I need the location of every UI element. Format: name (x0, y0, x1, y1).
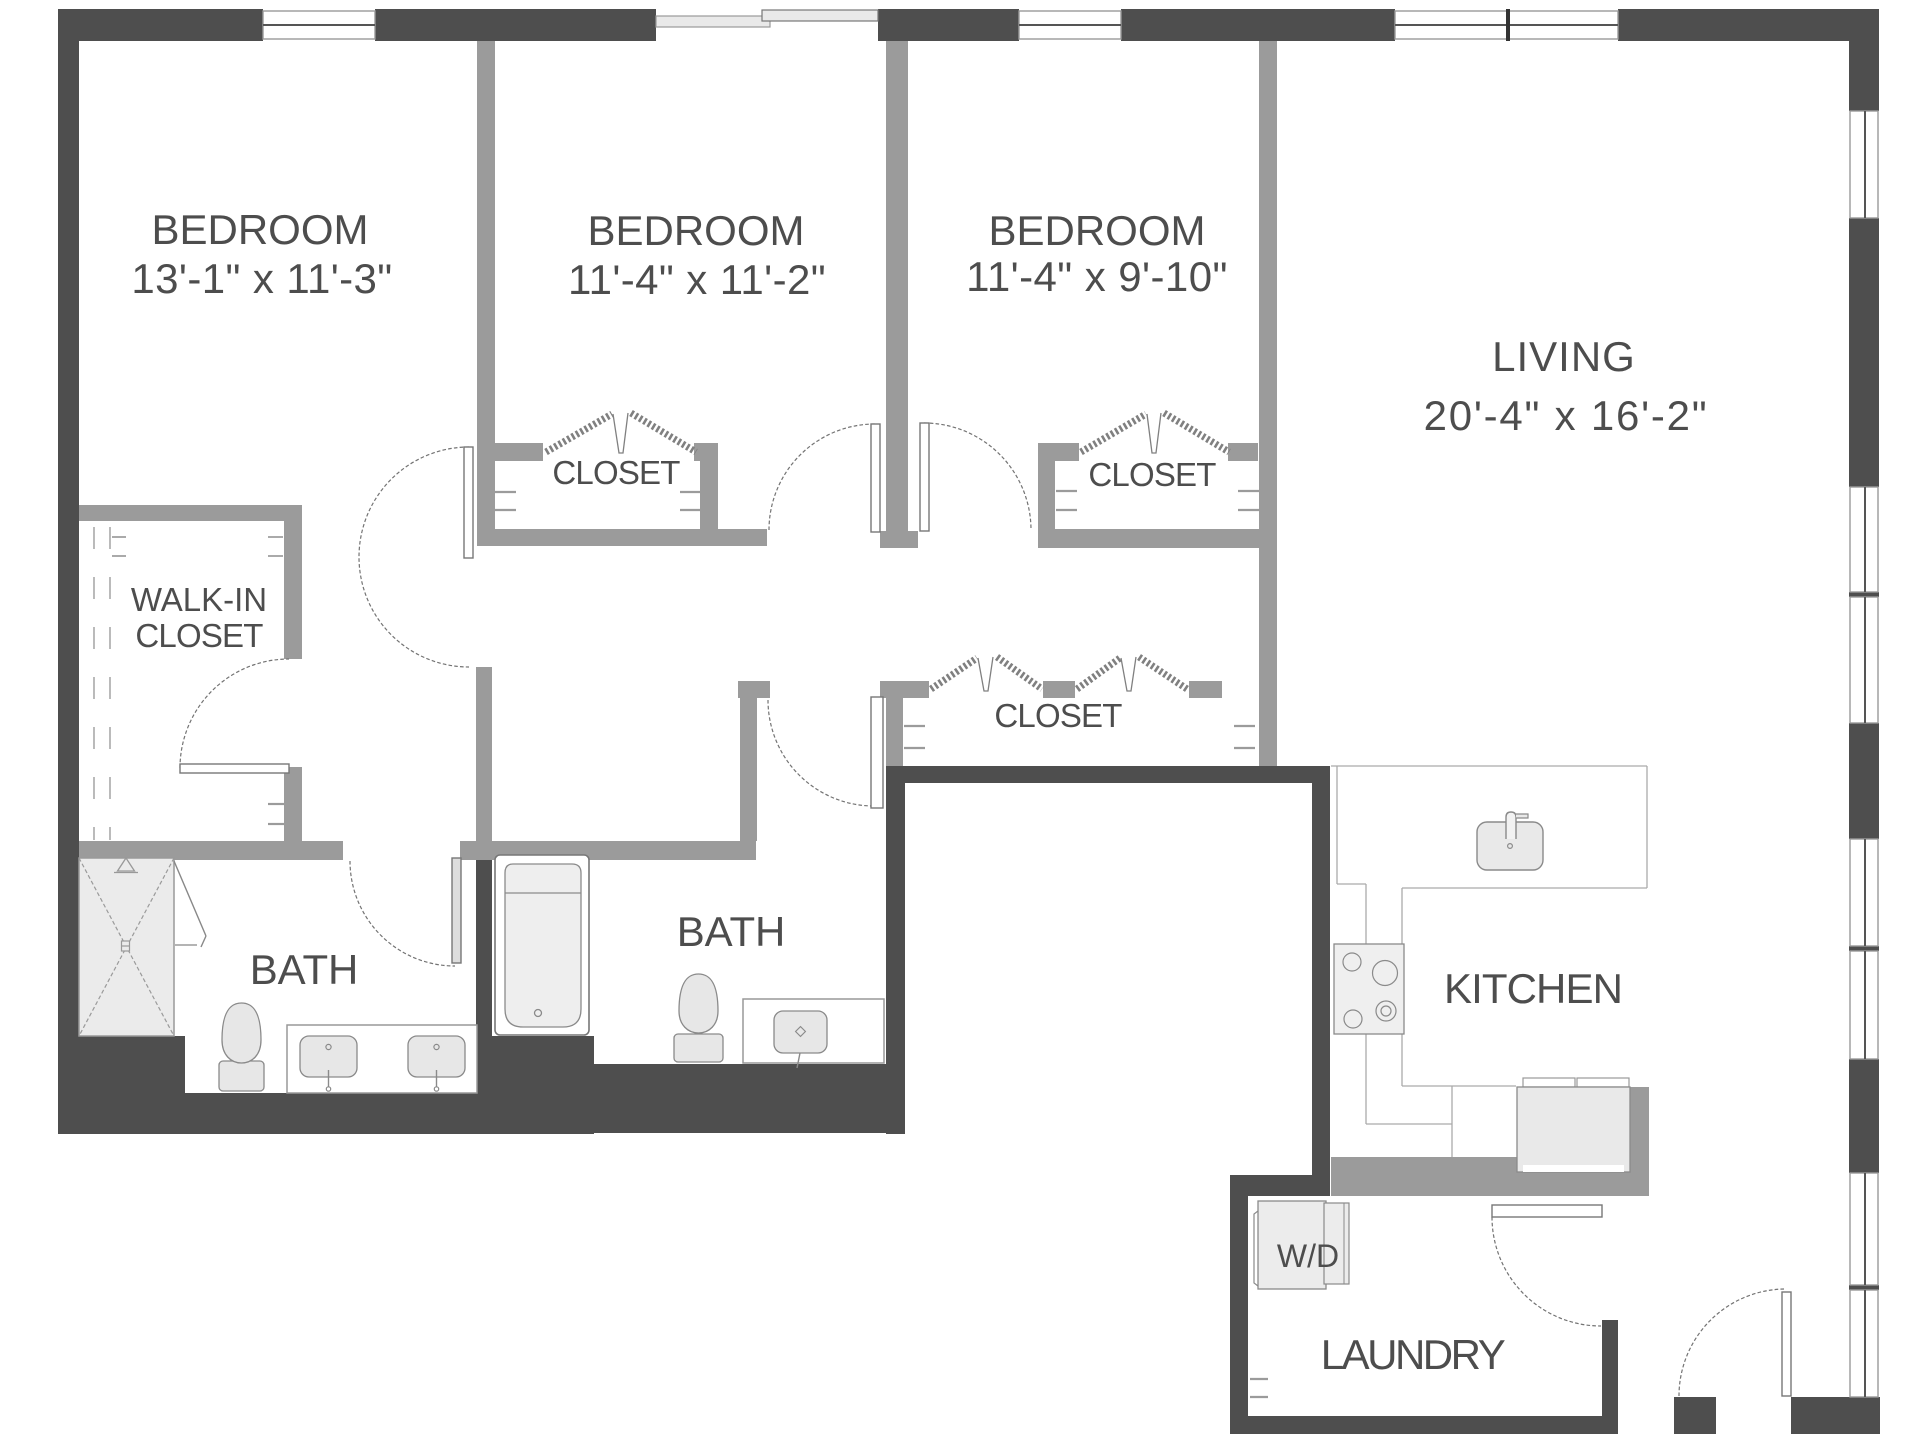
svg-text:13'-1" x 11'-3": 13'-1" x 11'-3" (131, 255, 392, 302)
svg-text:11'-4" x 9'-10": 11'-4" x 9'-10" (966, 253, 1228, 300)
svg-text:CLOSET: CLOSET (135, 617, 263, 654)
svg-text:BEDROOM: BEDROOM (988, 207, 1205, 254)
svg-text:BATH: BATH (677, 908, 786, 955)
svg-text:11'-4" x 11'-2": 11'-4" x 11'-2" (568, 256, 826, 303)
svg-text:KITCHEN: KITCHEN (1444, 965, 1622, 1012)
svg-text:CLOSET: CLOSET (1088, 456, 1216, 493)
svg-text:LAUNDRY: LAUNDRY (1321, 1331, 1506, 1378)
svg-text:BEDROOM: BEDROOM (587, 207, 804, 254)
svg-text:LIVING: LIVING (1492, 333, 1636, 380)
svg-text:BEDROOM: BEDROOM (151, 206, 368, 253)
svg-text:W/D: W/D (1277, 1238, 1339, 1274)
svg-text:CLOSET: CLOSET (552, 454, 680, 491)
svg-text:WALK-IN: WALK-IN (131, 581, 267, 618)
svg-text:20'-4" x 16'-2": 20'-4" x 16'-2" (1424, 392, 1709, 439)
svg-text:CLOSET: CLOSET (994, 697, 1122, 734)
svg-text:BATH: BATH (250, 946, 359, 993)
